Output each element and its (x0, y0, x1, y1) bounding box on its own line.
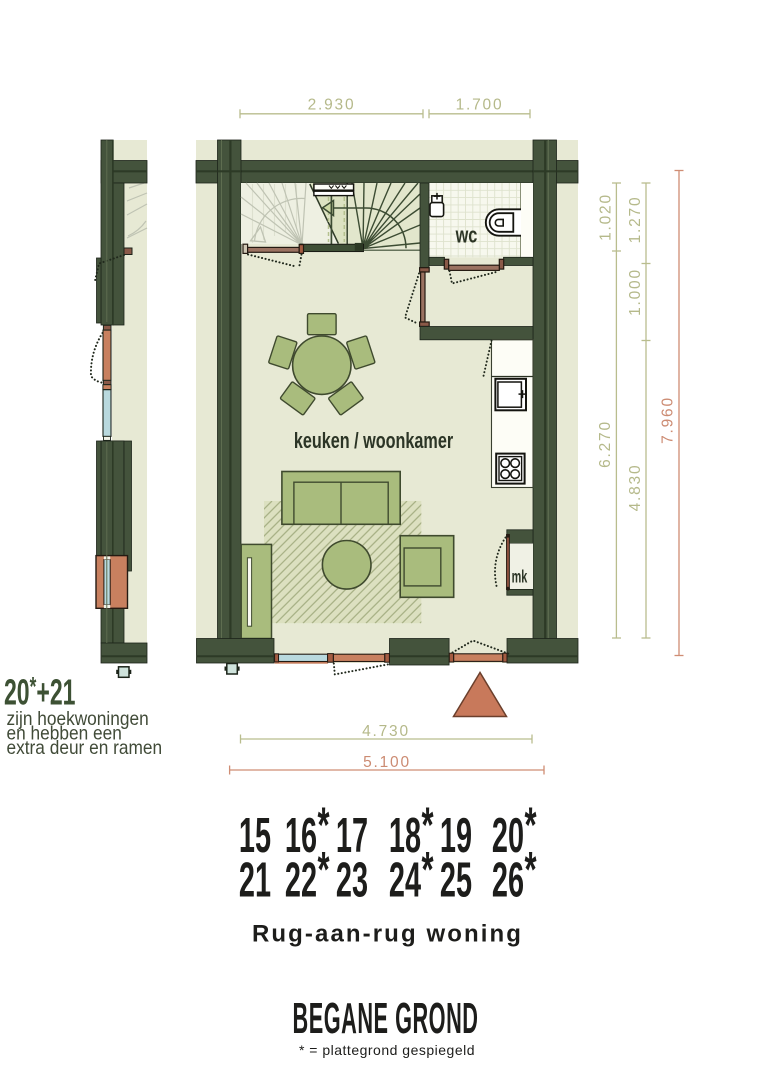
svg-text:*: * (317, 841, 330, 897)
svg-text:mk: mk (512, 568, 528, 587)
svg-text:4.730: 4.730 (362, 723, 410, 740)
svg-text:23: 23 (336, 851, 368, 907)
svg-text:20*+21: 20*+21 (4, 670, 75, 712)
svg-text:5.100: 5.100 (363, 754, 411, 771)
svg-text:*: * (421, 841, 434, 897)
svg-text:1.020: 1.020 (598, 193, 615, 241)
svg-text:26: 26 (492, 851, 524, 907)
svg-text:4.830: 4.830 (627, 464, 644, 512)
svg-text:wc: wc (455, 223, 478, 248)
svg-text:extra deur en ramen: extra deur en ramen (7, 737, 163, 758)
svg-text:7.960: 7.960 (660, 396, 677, 444)
svg-text:6.270: 6.270 (597, 420, 614, 468)
svg-text:* = plattegrond gespiegeld: * = plattegrond gespiegeld (299, 1042, 475, 1058)
svg-text:*: * (524, 841, 537, 897)
svg-text:1.700: 1.700 (456, 97, 504, 114)
svg-text:Rug-aan-rug woning: Rug-aan-rug woning (252, 921, 523, 948)
svg-text:22: 22 (285, 851, 317, 907)
svg-text:1.270: 1.270 (627, 196, 644, 244)
svg-text:BEGANE GROND: BEGANE GROND (293, 995, 479, 1043)
svg-text:25: 25 (440, 851, 472, 907)
svg-text:2.930: 2.930 (308, 97, 356, 114)
svg-text:keuken / woonkamer: keuken / woonkamer (294, 428, 454, 453)
svg-text:24: 24 (389, 851, 421, 907)
svg-text:21: 21 (239, 851, 271, 907)
svg-text:1.000: 1.000 (627, 268, 644, 316)
